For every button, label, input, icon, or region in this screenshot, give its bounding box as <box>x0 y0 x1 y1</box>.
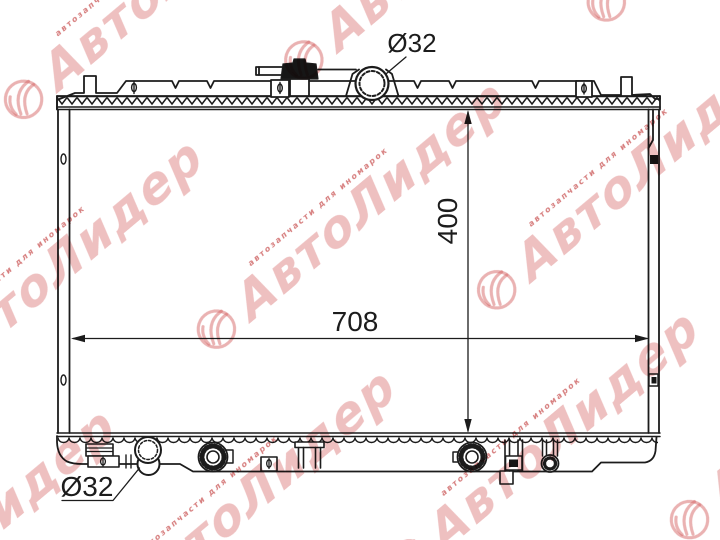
top-tank-crimp-seam <box>57 96 660 110</box>
label-top-neck-diameter: Ø32 <box>387 28 436 58</box>
filler-cap <box>281 59 318 79</box>
filler-cap-body <box>290 79 309 96</box>
bottom-mount-bracket <box>295 442 324 468</box>
label-core-height: 400 <box>432 198 463 245</box>
bottom-fitting-right <box>453 443 487 472</box>
radiator-drawing: Ø32 708 400 Ø32 <box>0 0 720 540</box>
right-side-column <box>649 110 660 434</box>
label-core-width: 708 <box>332 306 379 337</box>
bottom-bracket-foot <box>500 440 523 484</box>
label-bottom-pipe-diameter: Ø32 <box>61 471 114 502</box>
bottom-fitting-left <box>199 443 234 472</box>
dimension-core-height <box>464 110 471 433</box>
leader-top-neck <box>387 57 407 74</box>
top-right-bracket <box>576 81 592 97</box>
cap-bracket <box>271 80 289 97</box>
left-side-column <box>58 110 70 434</box>
catalog-diagram-screen: Ø32 708 400 Ø32 автозапчасти для иномаро… <box>0 0 720 540</box>
bottom-square-bracket <box>261 457 277 471</box>
